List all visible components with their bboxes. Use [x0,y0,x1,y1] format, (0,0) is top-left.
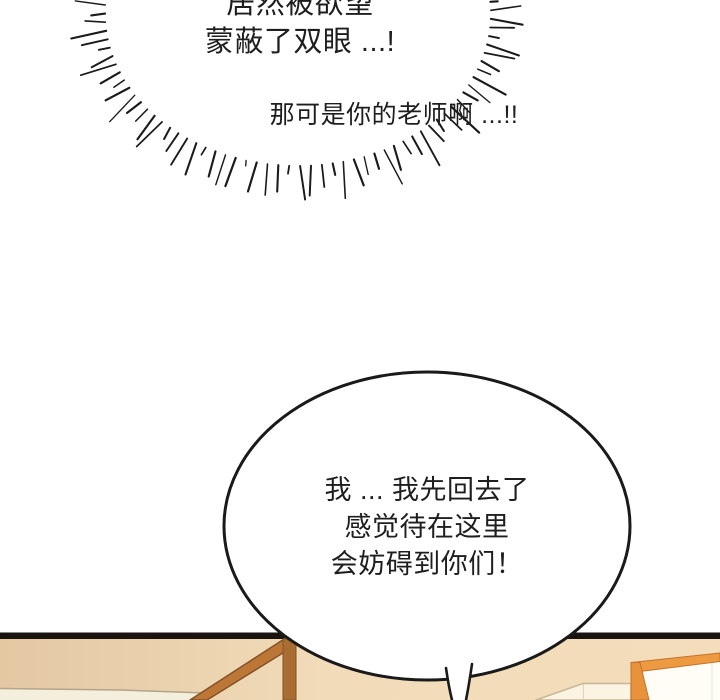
speech-bubble-text: 我 ... 我先回去了 感觉待在这里 会妨碍到你们！ [277,472,577,583]
comic-panel: 居然被欲望 蒙蔽了双眼 ...! 那可是你的老师啊 ...!! [0,0,720,700]
speech-bubble-line2: 感觉待在这里 [277,509,577,546]
speech-bubble-line3: 会妨碍到你们！ [277,546,577,583]
speech-bubble [0,0,720,700]
speech-bubble-line1: 我 ... 我先回去了 [277,472,577,509]
